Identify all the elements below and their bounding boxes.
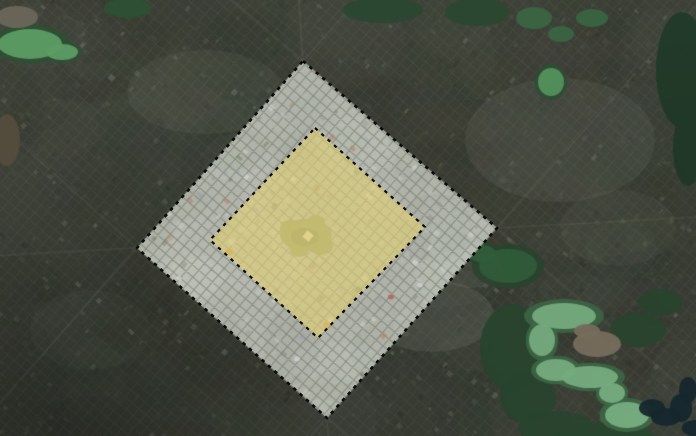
satellite-map-view (0, 0, 696, 436)
satellite-imagery (0, 0, 696, 436)
